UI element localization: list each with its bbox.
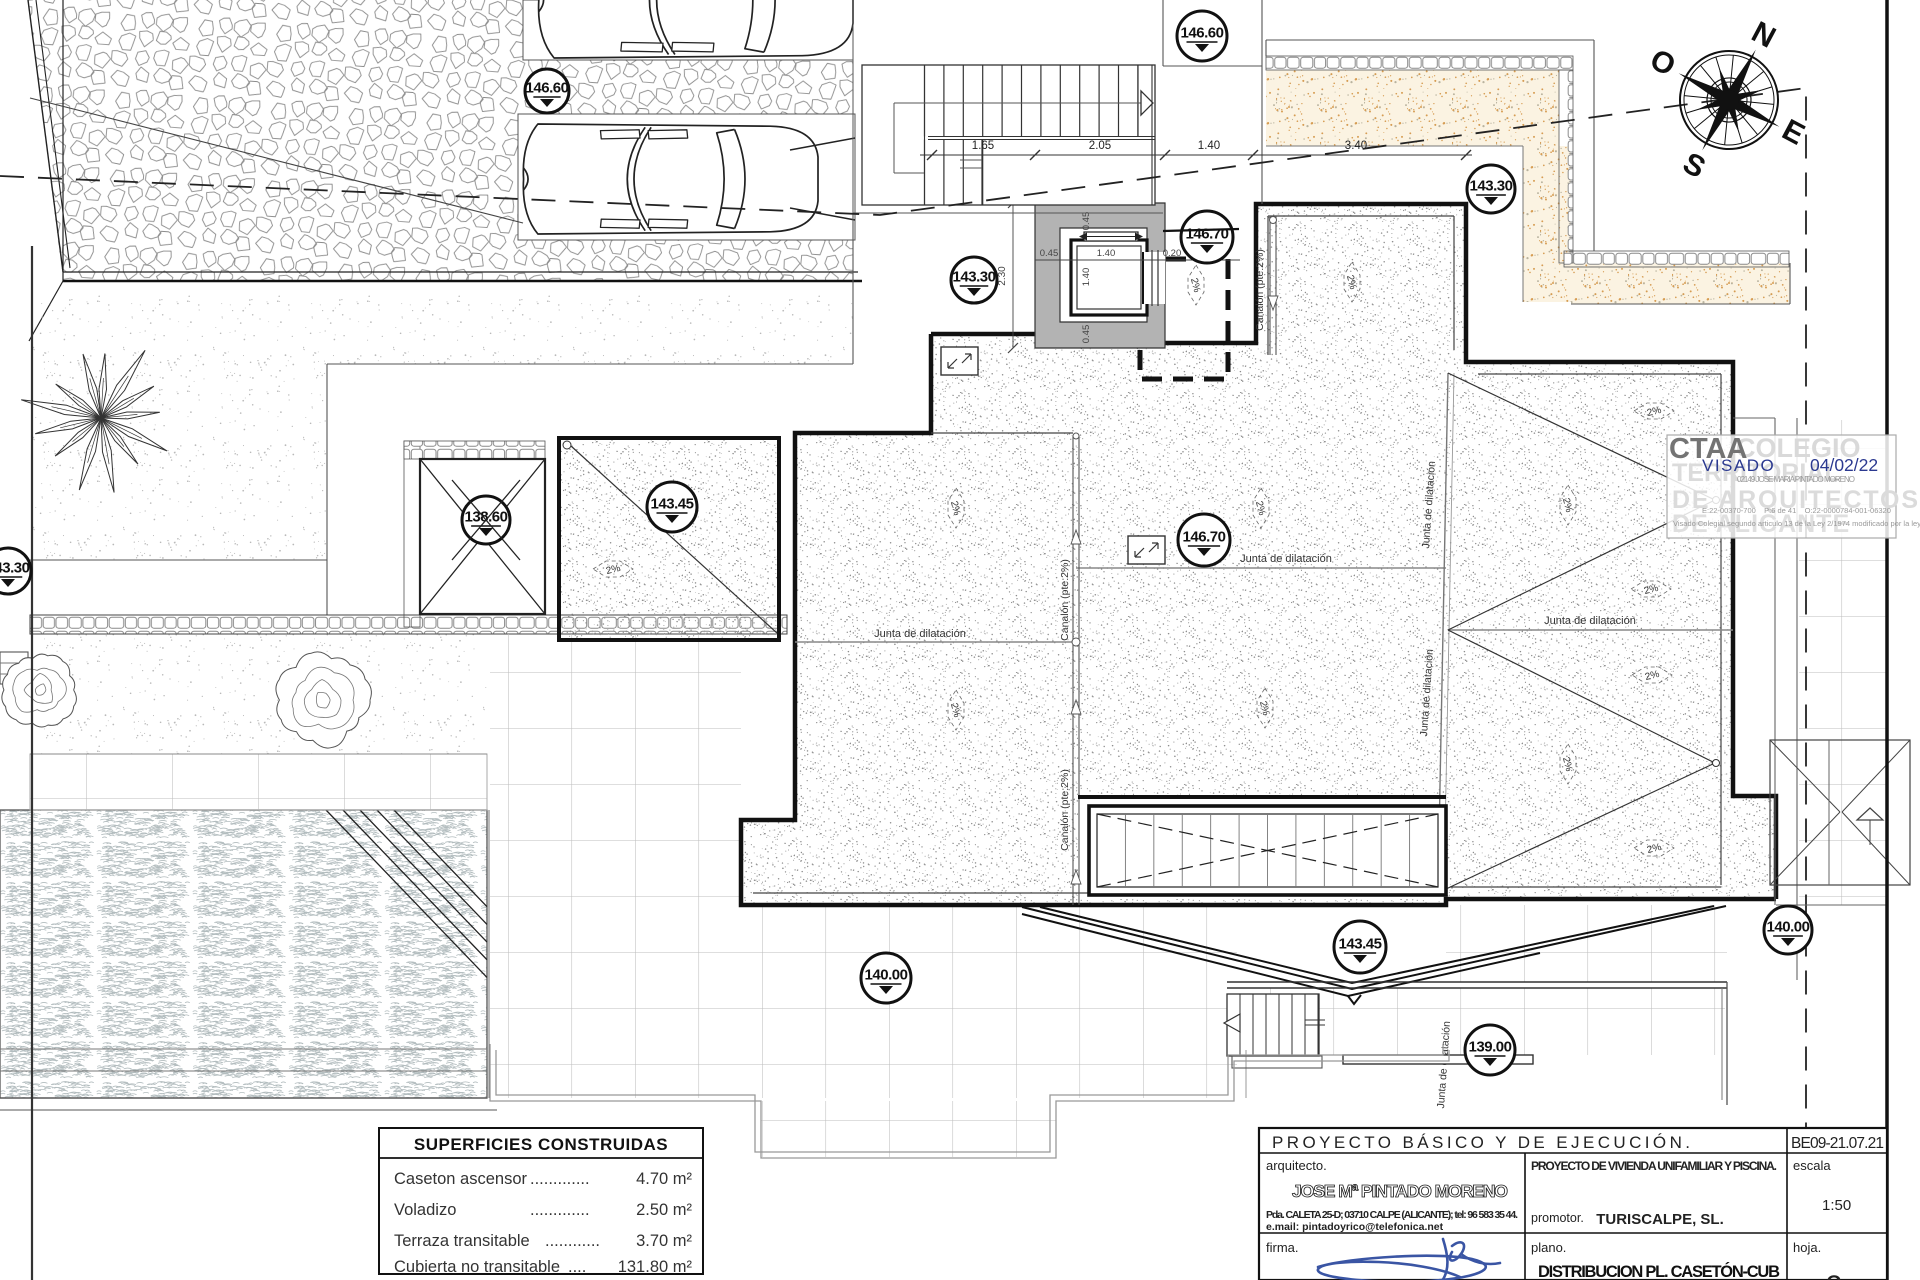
svg-text:Terraza transitable: Terraza transitable <box>394 1232 530 1250</box>
svg-text:PROYECTO DE VIVIENDA UNIFAMILI: PROYECTO DE VIVIENDA UNIFAMILIAR Y PISCI… <box>1531 1159 1777 1173</box>
svg-text:Pda. CALETA 25-D; 03710 CALPE: Pda. CALETA 25-D; 03710 CALPE (ALICANTE)… <box>1266 1209 1518 1221</box>
svg-text:DISTRIBUCION PL. CASETÓN-CUB: DISTRIBUCION PL. CASETÓN-CUB <box>1538 1262 1780 1280</box>
svg-text:146.70: 146.70 <box>1183 529 1226 546</box>
svg-text:escala: escala <box>1793 1158 1831 1173</box>
svg-text:143.30: 143.30 <box>0 560 30 577</box>
svg-text:143.45: 143.45 <box>1339 936 1382 953</box>
svg-text:SUPERFICIES CONSTRUIDAS: SUPERFICIES CONSTRUIDAS <box>414 1135 668 1154</box>
svg-text:VISADO: VISADO <box>1702 456 1775 475</box>
svg-text:146.60: 146.60 <box>1181 25 1224 42</box>
svg-text:Visado Colegial segundo articu: Visado Colegial segundo articulo 13 de l… <box>1673 519 1920 528</box>
svg-text:3.70 m²: 3.70 m² <box>636 1232 692 1250</box>
svg-text:138.60: 138.60 <box>465 509 508 526</box>
svg-text:promotor.: promotor. <box>1531 1211 1584 1225</box>
svg-text:1.65: 1.65 <box>972 140 994 152</box>
svg-text:.............: ............. <box>530 1170 590 1188</box>
svg-text:140.00: 140.00 <box>1767 919 1810 936</box>
svg-text:0.45: 0.45 <box>1040 248 1059 259</box>
svg-text:plano.: plano. <box>1531 1240 1566 1255</box>
svg-text:............: ............ <box>545 1232 600 1250</box>
svg-text:1.40: 1.40 <box>1081 268 1092 287</box>
svg-text:146.70: 146.70 <box>1186 226 1229 243</box>
svg-text:E:22-00370-700 P:6 de 41: E:22-00370-700 P:6 de 41 O:22-0000784-00… <box>1702 506 1891 515</box>
svg-text:firma.: firma. <box>1266 1240 1299 1255</box>
svg-text:arquitecto.: arquitecto. <box>1266 1158 1327 1173</box>
svg-text:e.mail: pintadoyrico@telefonic: e.mail: pintadoyrico@telefonica.net <box>1266 1221 1444 1233</box>
svg-text:4.70 m²: 4.70 m² <box>636 1170 692 1188</box>
svg-text:143.30: 143.30 <box>953 269 996 286</box>
svg-text:04/02/22: 04/02/22 <box>1810 455 1878 475</box>
svg-text:Canalón (pte:2%): Canalón (pte:2%) <box>1059 769 1071 851</box>
svg-text:2.50 m²: 2.50 m² <box>636 1201 692 1219</box>
svg-text:0.45: 0.45 <box>1081 325 1092 344</box>
svg-text:Junta de dilatación: Junta de dilatación <box>874 628 966 640</box>
svg-text:1.40: 1.40 <box>1097 248 1116 259</box>
svg-text:0.45: 0.45 <box>1081 212 1092 231</box>
svg-text:1:50: 1:50 <box>1822 1197 1851 1214</box>
svg-text:2.05: 2.05 <box>1089 140 1111 152</box>
svg-text:140.00: 140.00 <box>865 967 908 984</box>
svg-text:02149 JOSE MARIA PINTADO MOREN: 02149 JOSE MARIA PINTADO MORENO <box>1737 475 1855 484</box>
svg-text:JOSE Mª PINTADO MORENO: JOSE Mª PINTADO MORENO <box>1292 1181 1508 1201</box>
svg-text:Junta de dilatación: Junta de dilatación <box>1544 615 1636 627</box>
svg-text:139.00: 139.00 <box>1469 1039 1512 1056</box>
svg-text:146.60: 146.60 <box>526 80 569 97</box>
svg-text:143.30: 143.30 <box>1470 178 1513 195</box>
svg-text:Voladizo: Voladizo <box>394 1201 456 1219</box>
svg-text:TURISCALPE, SL.: TURISCALPE, SL. <box>1596 1211 1724 1228</box>
svg-text:2: 2 <box>1826 1270 1843 1280</box>
svg-text:BE09-21.07.21: BE09-21.07.21 <box>1791 1135 1884 1152</box>
svg-text:0.20: 0.20 <box>1163 248 1182 259</box>
svg-text:Caseton ascensor: Caseton ascensor <box>394 1170 527 1188</box>
svg-text:Canalón (pte:2%): Canalón (pte:2%) <box>1254 249 1266 331</box>
svg-text:hoja.: hoja. <box>1793 1240 1821 1255</box>
svg-text:Junta de dilatación: Junta de dilatación <box>1240 553 1332 565</box>
svg-text:143.45: 143.45 <box>651 496 694 513</box>
svg-text:1.40: 1.40 <box>1198 140 1220 152</box>
svg-text:2.30: 2.30 <box>997 266 1008 286</box>
svg-text:Canalón (pte:2%): Canalón (pte:2%) <box>1059 559 1071 641</box>
svg-text:.............: ............. <box>530 1201 590 1219</box>
